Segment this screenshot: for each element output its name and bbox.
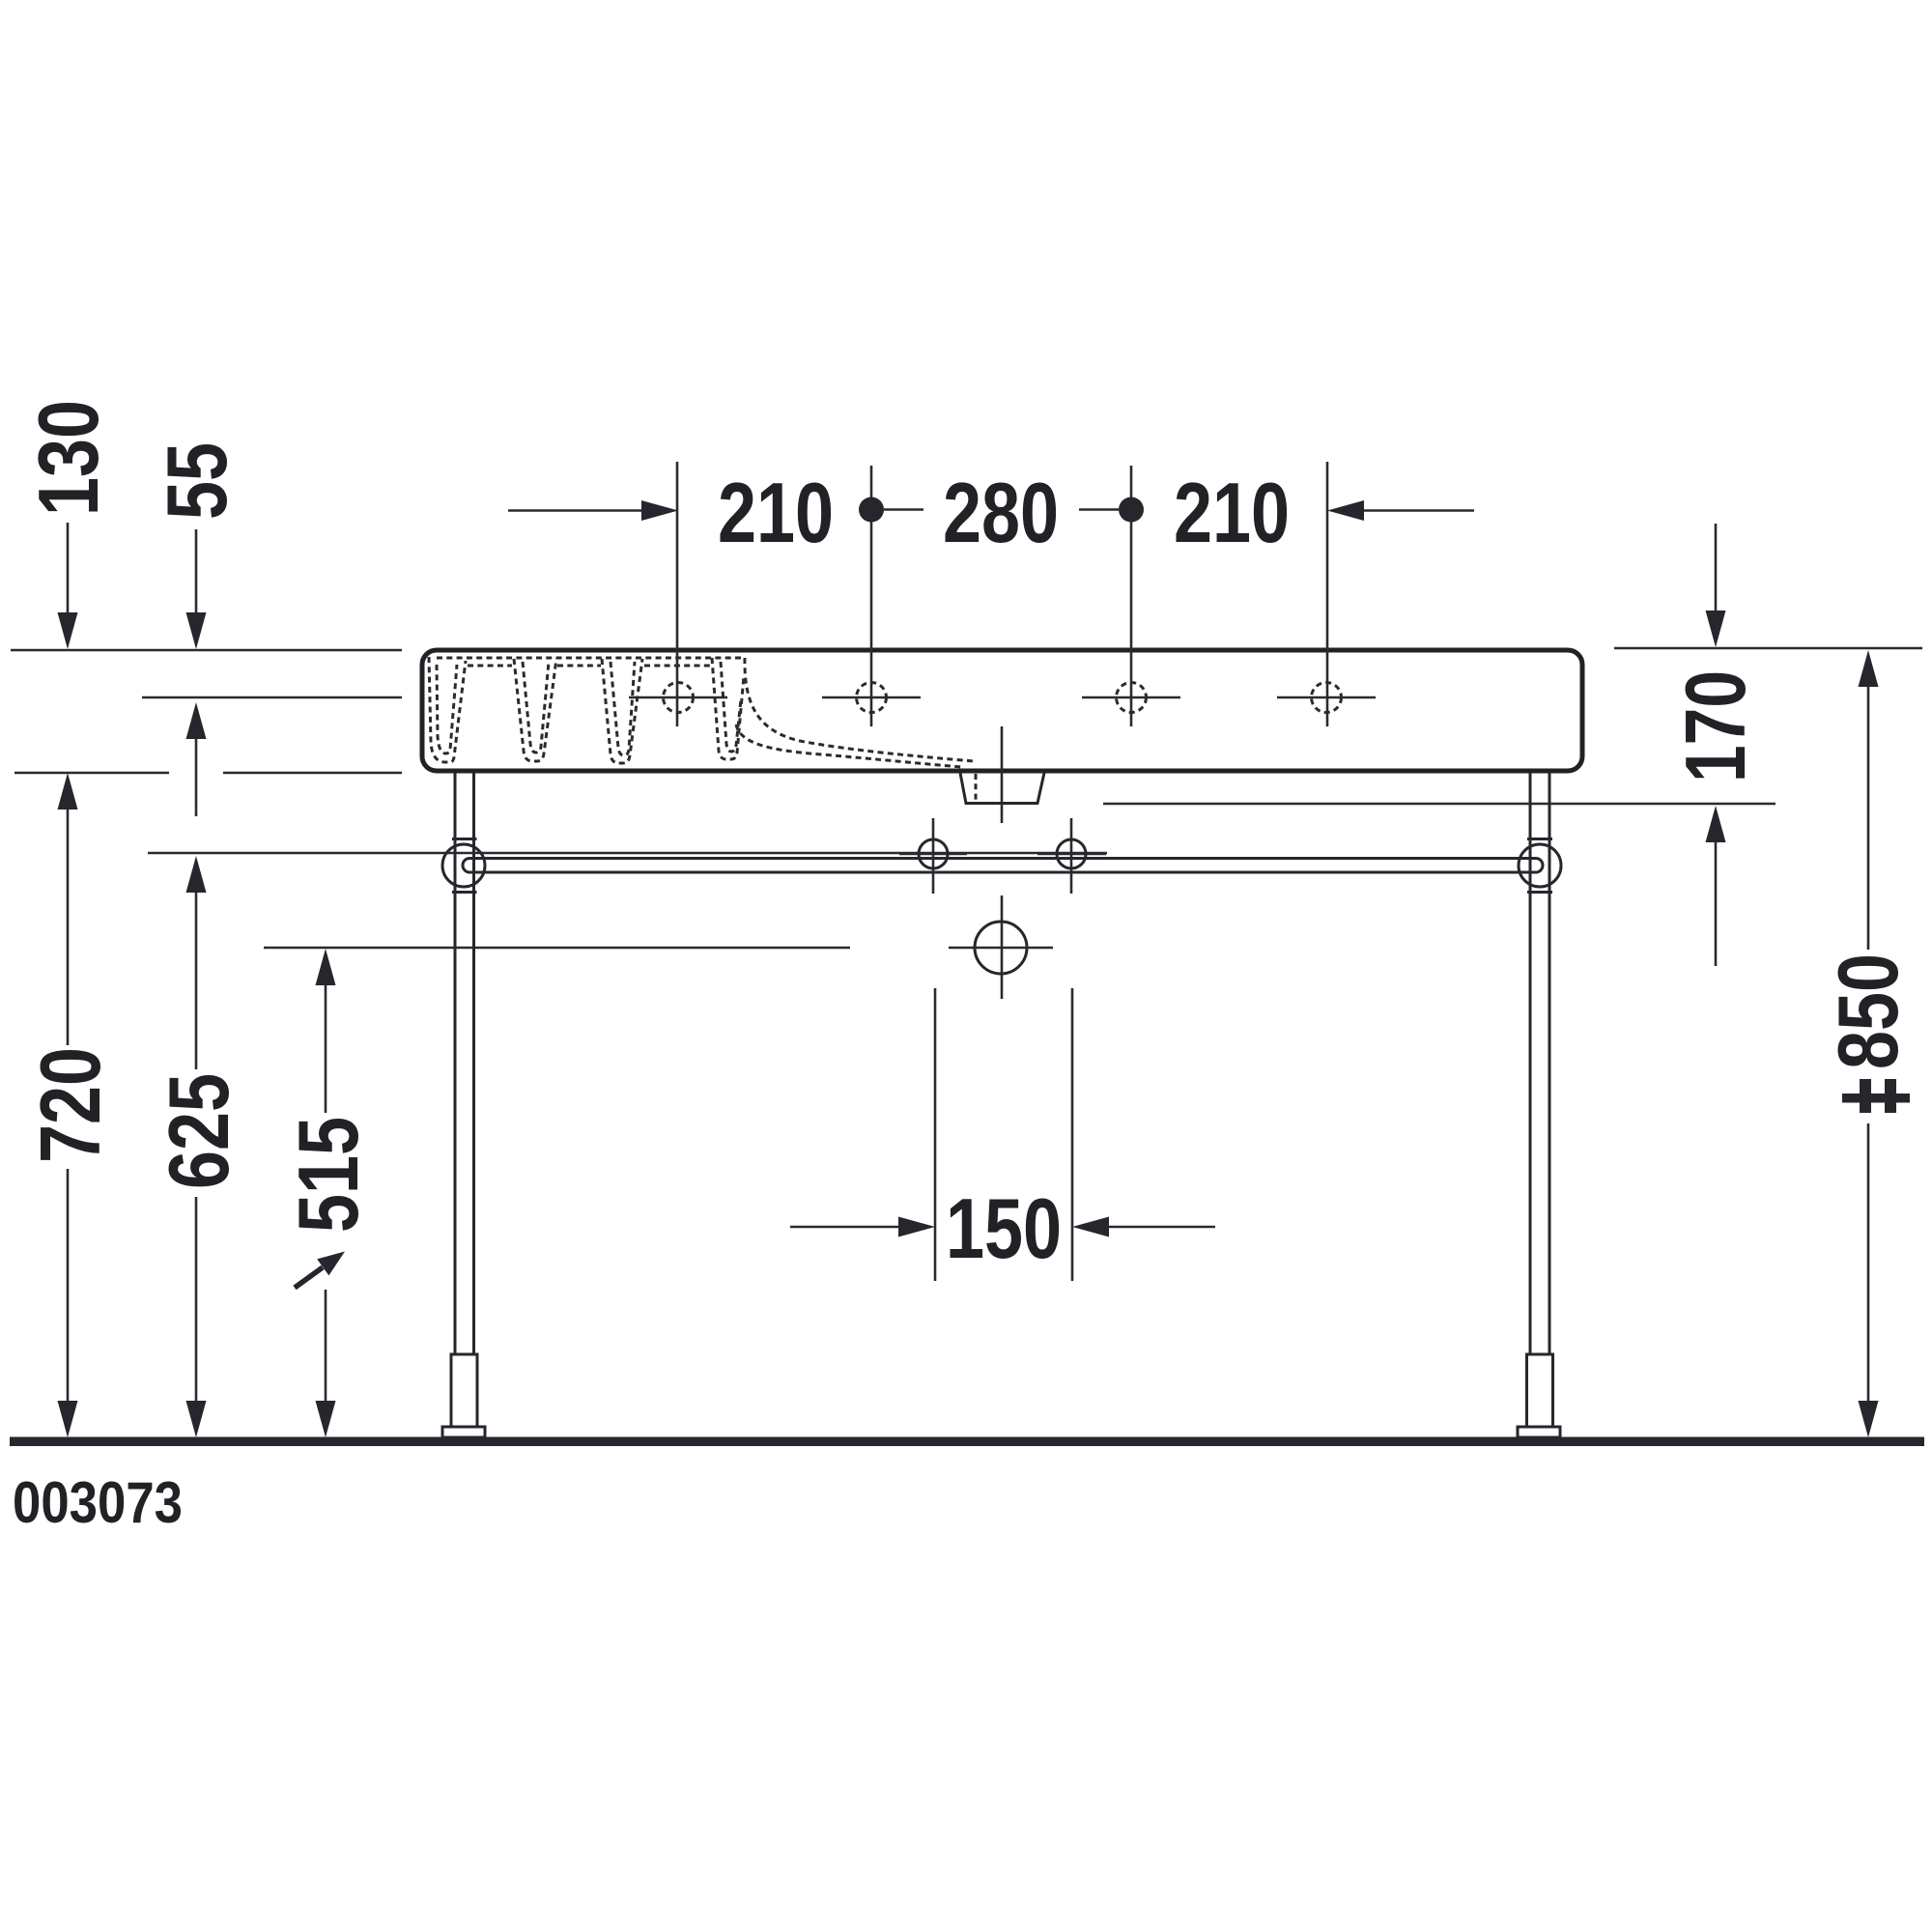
svg-text:150: 150	[946, 1180, 1062, 1276]
svg-text:280: 280	[943, 465, 1059, 560]
svg-text:720: 720	[22, 1047, 118, 1163]
svg-text:003073: 003073	[13, 1470, 183, 1535]
svg-text:210: 210	[1174, 465, 1290, 560]
svg-text:130: 130	[20, 400, 116, 516]
svg-text:55: 55	[149, 442, 244, 520]
svg-text:170: 170	[1667, 670, 1763, 782]
svg-text:210: 210	[718, 465, 834, 560]
svg-text:625: 625	[151, 1073, 246, 1189]
svg-text:515: 515	[280, 1117, 376, 1233]
svg-text:850: 850	[1820, 953, 1916, 1069]
